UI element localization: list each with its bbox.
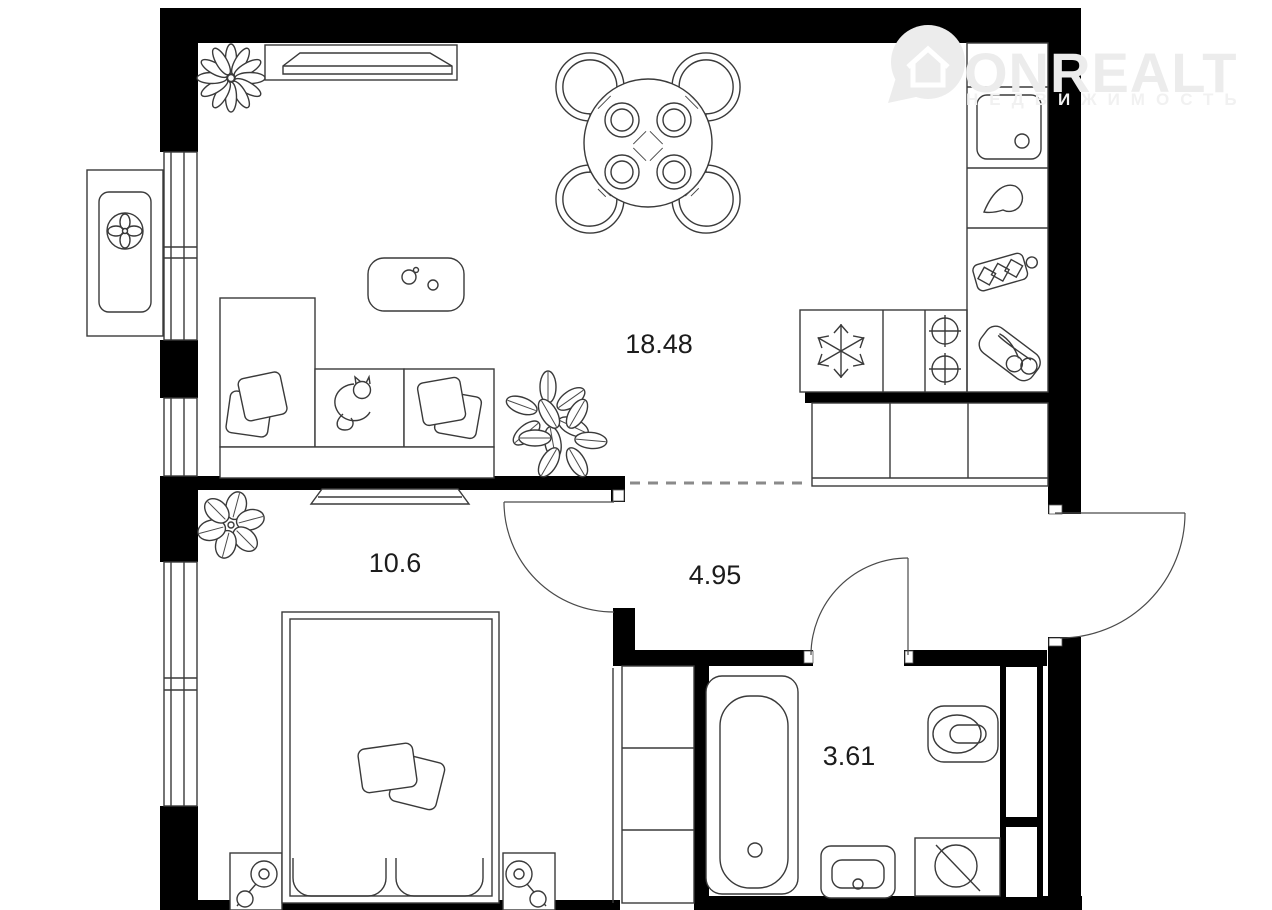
floorplan-canvas: 18.48 10.6 4.95 3.61 ONREALT НЕДВИЖИМОСТ… (0, 0, 1272, 910)
bathtub-icon (706, 676, 798, 894)
flower-icon (196, 490, 267, 561)
stove-burners-icon (929, 315, 961, 385)
bed-icon (282, 612, 499, 903)
door-frame-notch (1049, 638, 1062, 646)
built-in-closet (613, 666, 694, 903)
wall-shelf-icon (265, 45, 457, 80)
door-frame-notch (804, 651, 813, 663)
nightstand-lamp-icon (503, 853, 555, 910)
washbasin-icon (821, 846, 895, 898)
air-conditioner-fan-icon (107, 213, 143, 249)
coffee-table-icon (368, 258, 464, 311)
plant-icon (504, 371, 608, 480)
toilet-icon (928, 706, 998, 762)
room-area-label-bedroom: 10.6 (369, 548, 422, 578)
floorplan-image: 18.48 10.6 4.95 3.61 ONREALT НЕДВИЖИМОСТ… (0, 0, 1272, 910)
window-bedroom (164, 562, 197, 806)
drop-icon (984, 185, 1022, 212)
bedroom-door (504, 502, 614, 612)
door-frame-notch (613, 490, 624, 501)
ventilation-shaft (1006, 827, 1037, 897)
ventilation-shaft (1006, 667, 1037, 817)
washing-machine-icon (915, 838, 1000, 896)
room-area-label-bathroom: 3.61 (823, 741, 876, 771)
window-living (164, 152, 197, 340)
balcony (87, 170, 163, 336)
wardrobe-icon (812, 403, 1048, 486)
window-living-low (164, 398, 197, 476)
tv-shelf-icon (311, 489, 469, 504)
nightstand-lamp-icon (230, 853, 282, 910)
dining-table-icon (542, 39, 754, 247)
room-area-label-living: 18.48 (625, 329, 693, 359)
flower-icon (197, 44, 265, 112)
sofa-icon (220, 298, 494, 478)
bathroom-door (811, 558, 908, 655)
room-area-label-hallway: 4.95 (689, 560, 742, 590)
watermark-subtitle: НЕДВИЖИМОСТЬ (966, 90, 1248, 109)
cutting-board-icon (972, 248, 1041, 292)
fridge-snowflake-icon (814, 324, 868, 378)
door-frame-notch (905, 651, 913, 663)
entry-door (1055, 513, 1185, 638)
fruit-tray-icon (975, 322, 1045, 385)
